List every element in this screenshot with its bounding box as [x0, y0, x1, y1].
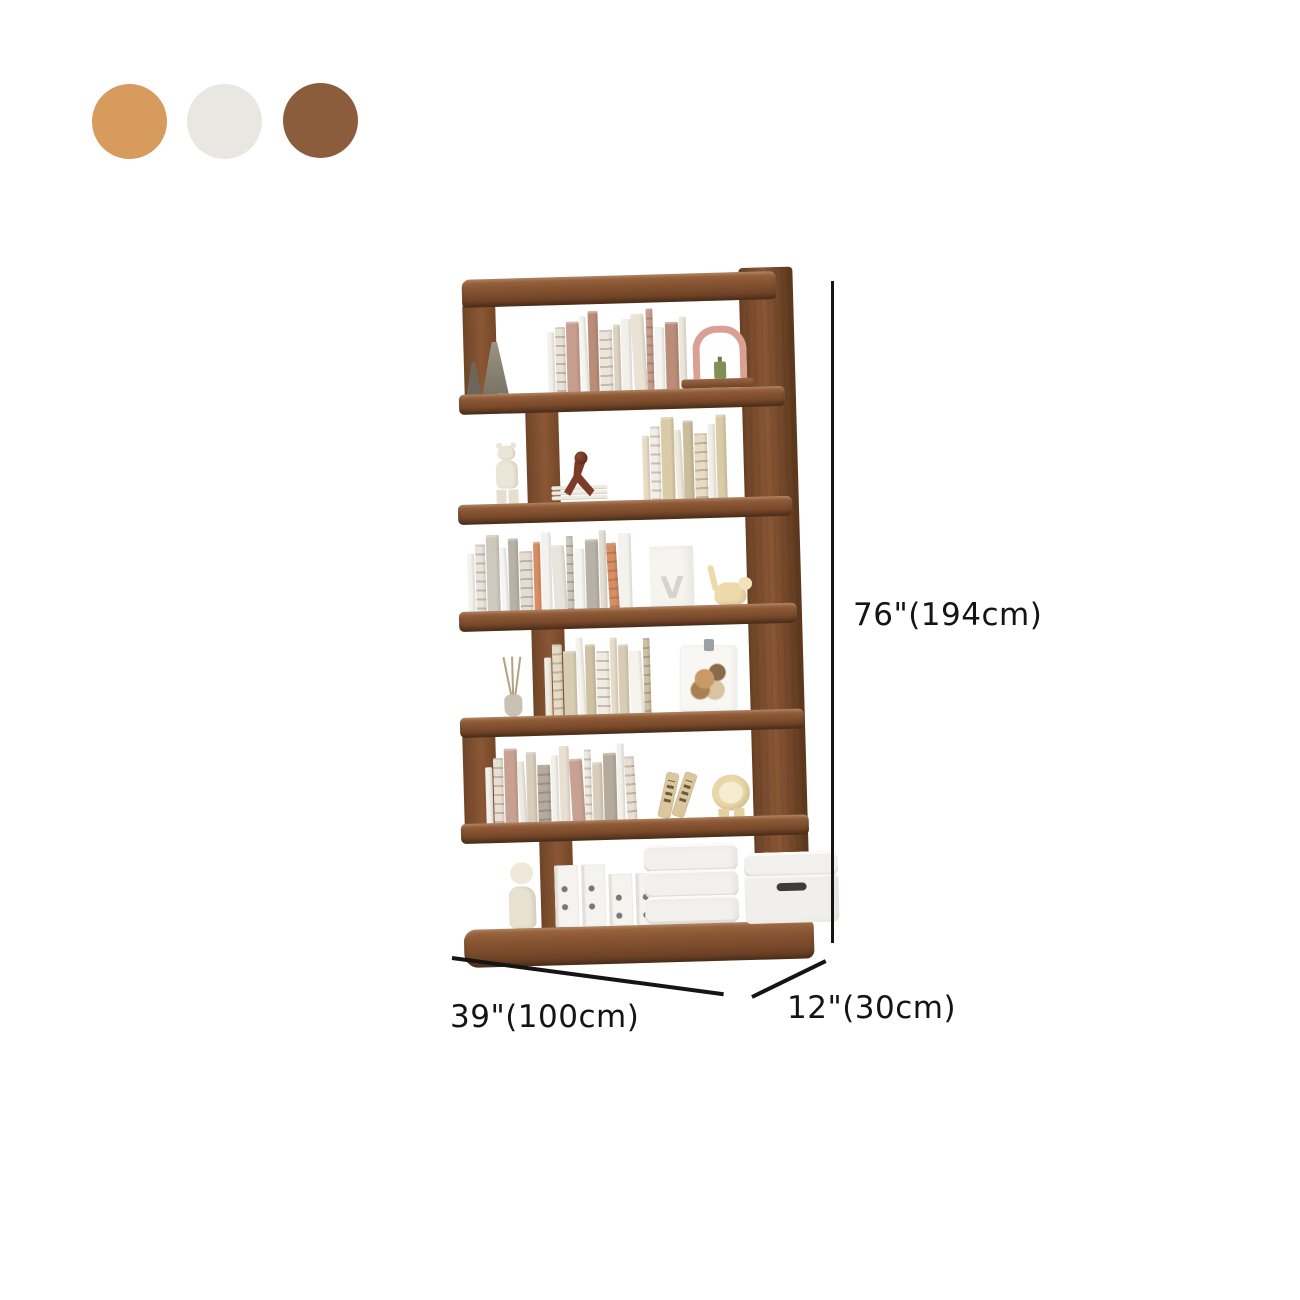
tier3-books	[467, 529, 647, 614]
book-spine	[694, 433, 709, 500]
book-spine	[493, 758, 505, 825]
book-spine	[508, 538, 520, 612]
calendar-clip	[704, 639, 714, 651]
top-board	[462, 271, 777, 308]
tier4-books	[544, 635, 676, 718]
vase-pot	[504, 694, 523, 716]
book-spine	[650, 426, 662, 501]
book-spine	[555, 327, 567, 394]
lion-figurine	[709, 774, 754, 817]
height-dimension-label: 76"(194cm)	[853, 597, 1042, 633]
book-spine	[526, 752, 538, 824]
book-spine	[618, 533, 633, 609]
book-spine	[475, 544, 487, 613]
book-spine	[574, 549, 586, 611]
reed-diffuser-vase	[498, 646, 530, 717]
red-figurine	[558, 451, 597, 502]
floral-flip-calendar	[680, 645, 736, 711]
depth-dimension-label: 12"(30cm)	[787, 990, 956, 1026]
book-spine	[654, 327, 666, 391]
book-spine	[603, 753, 618, 822]
book-spine	[596, 651, 611, 716]
book-spine	[617, 743, 626, 821]
book-spine	[585, 539, 600, 610]
cat-figurine	[708, 564, 753, 605]
book-spine	[599, 530, 608, 610]
bag-logo: V	[660, 571, 684, 607]
book-spine	[624, 756, 638, 821]
white-gift-bag: V	[649, 545, 695, 606]
figurine-head	[574, 451, 587, 464]
color-swatch-off-white[interactable]	[187, 84, 262, 159]
cat-head	[738, 577, 752, 590]
bookshelf-product-image: V	[445, 257, 815, 978]
book-spine	[486, 535, 501, 613]
color-swatch-walnut-brown[interactable]	[283, 83, 358, 158]
book-spine	[599, 330, 614, 393]
bearbrick-body	[496, 460, 519, 489]
book-spine	[683, 420, 695, 500]
storage-tray	[645, 894, 740, 925]
bearbrick-head	[497, 445, 515, 460]
book-spine	[552, 644, 564, 717]
color-swatch-oak-tan[interactable]	[92, 84, 167, 159]
comb-bookends	[661, 767, 702, 818]
book-spine	[519, 551, 534, 612]
book-spine	[592, 762, 604, 822]
squirrel-figurine	[506, 862, 540, 929]
bearbrick-legs	[496, 489, 518, 504]
book-spine	[715, 415, 727, 500]
arch-ornament	[692, 325, 747, 379]
book-spine	[563, 651, 578, 717]
storage-bin-stack	[744, 851, 840, 925]
calendar-floral-print	[688, 659, 730, 703]
bearbrick-figure	[490, 445, 526, 504]
book-spine	[559, 746, 571, 823]
book-spine	[504, 748, 519, 824]
book-spine	[541, 532, 553, 611]
squirrel-body	[508, 886, 536, 929]
tier5-books	[485, 743, 659, 826]
width-dimension-label: 39"(100cm)	[450, 999, 639, 1035]
squirrel-head	[510, 862, 534, 885]
tier1-books	[546, 308, 688, 395]
file-binder	[581, 864, 607, 927]
product-dimension-figure: V	[0, 0, 1300, 1300]
file-binder	[608, 873, 633, 926]
mini-bottle	[714, 361, 726, 378]
book-spine	[665, 322, 680, 391]
file-binder	[554, 865, 580, 928]
book-spine	[585, 644, 597, 716]
tier2-books	[641, 414, 739, 502]
storage-bin	[744, 874, 839, 925]
bin-handle-slot	[776, 882, 806, 891]
stacked-storage-trays	[643, 844, 739, 925]
book-spine	[537, 765, 552, 824]
height-dimension-line	[831, 281, 834, 943]
